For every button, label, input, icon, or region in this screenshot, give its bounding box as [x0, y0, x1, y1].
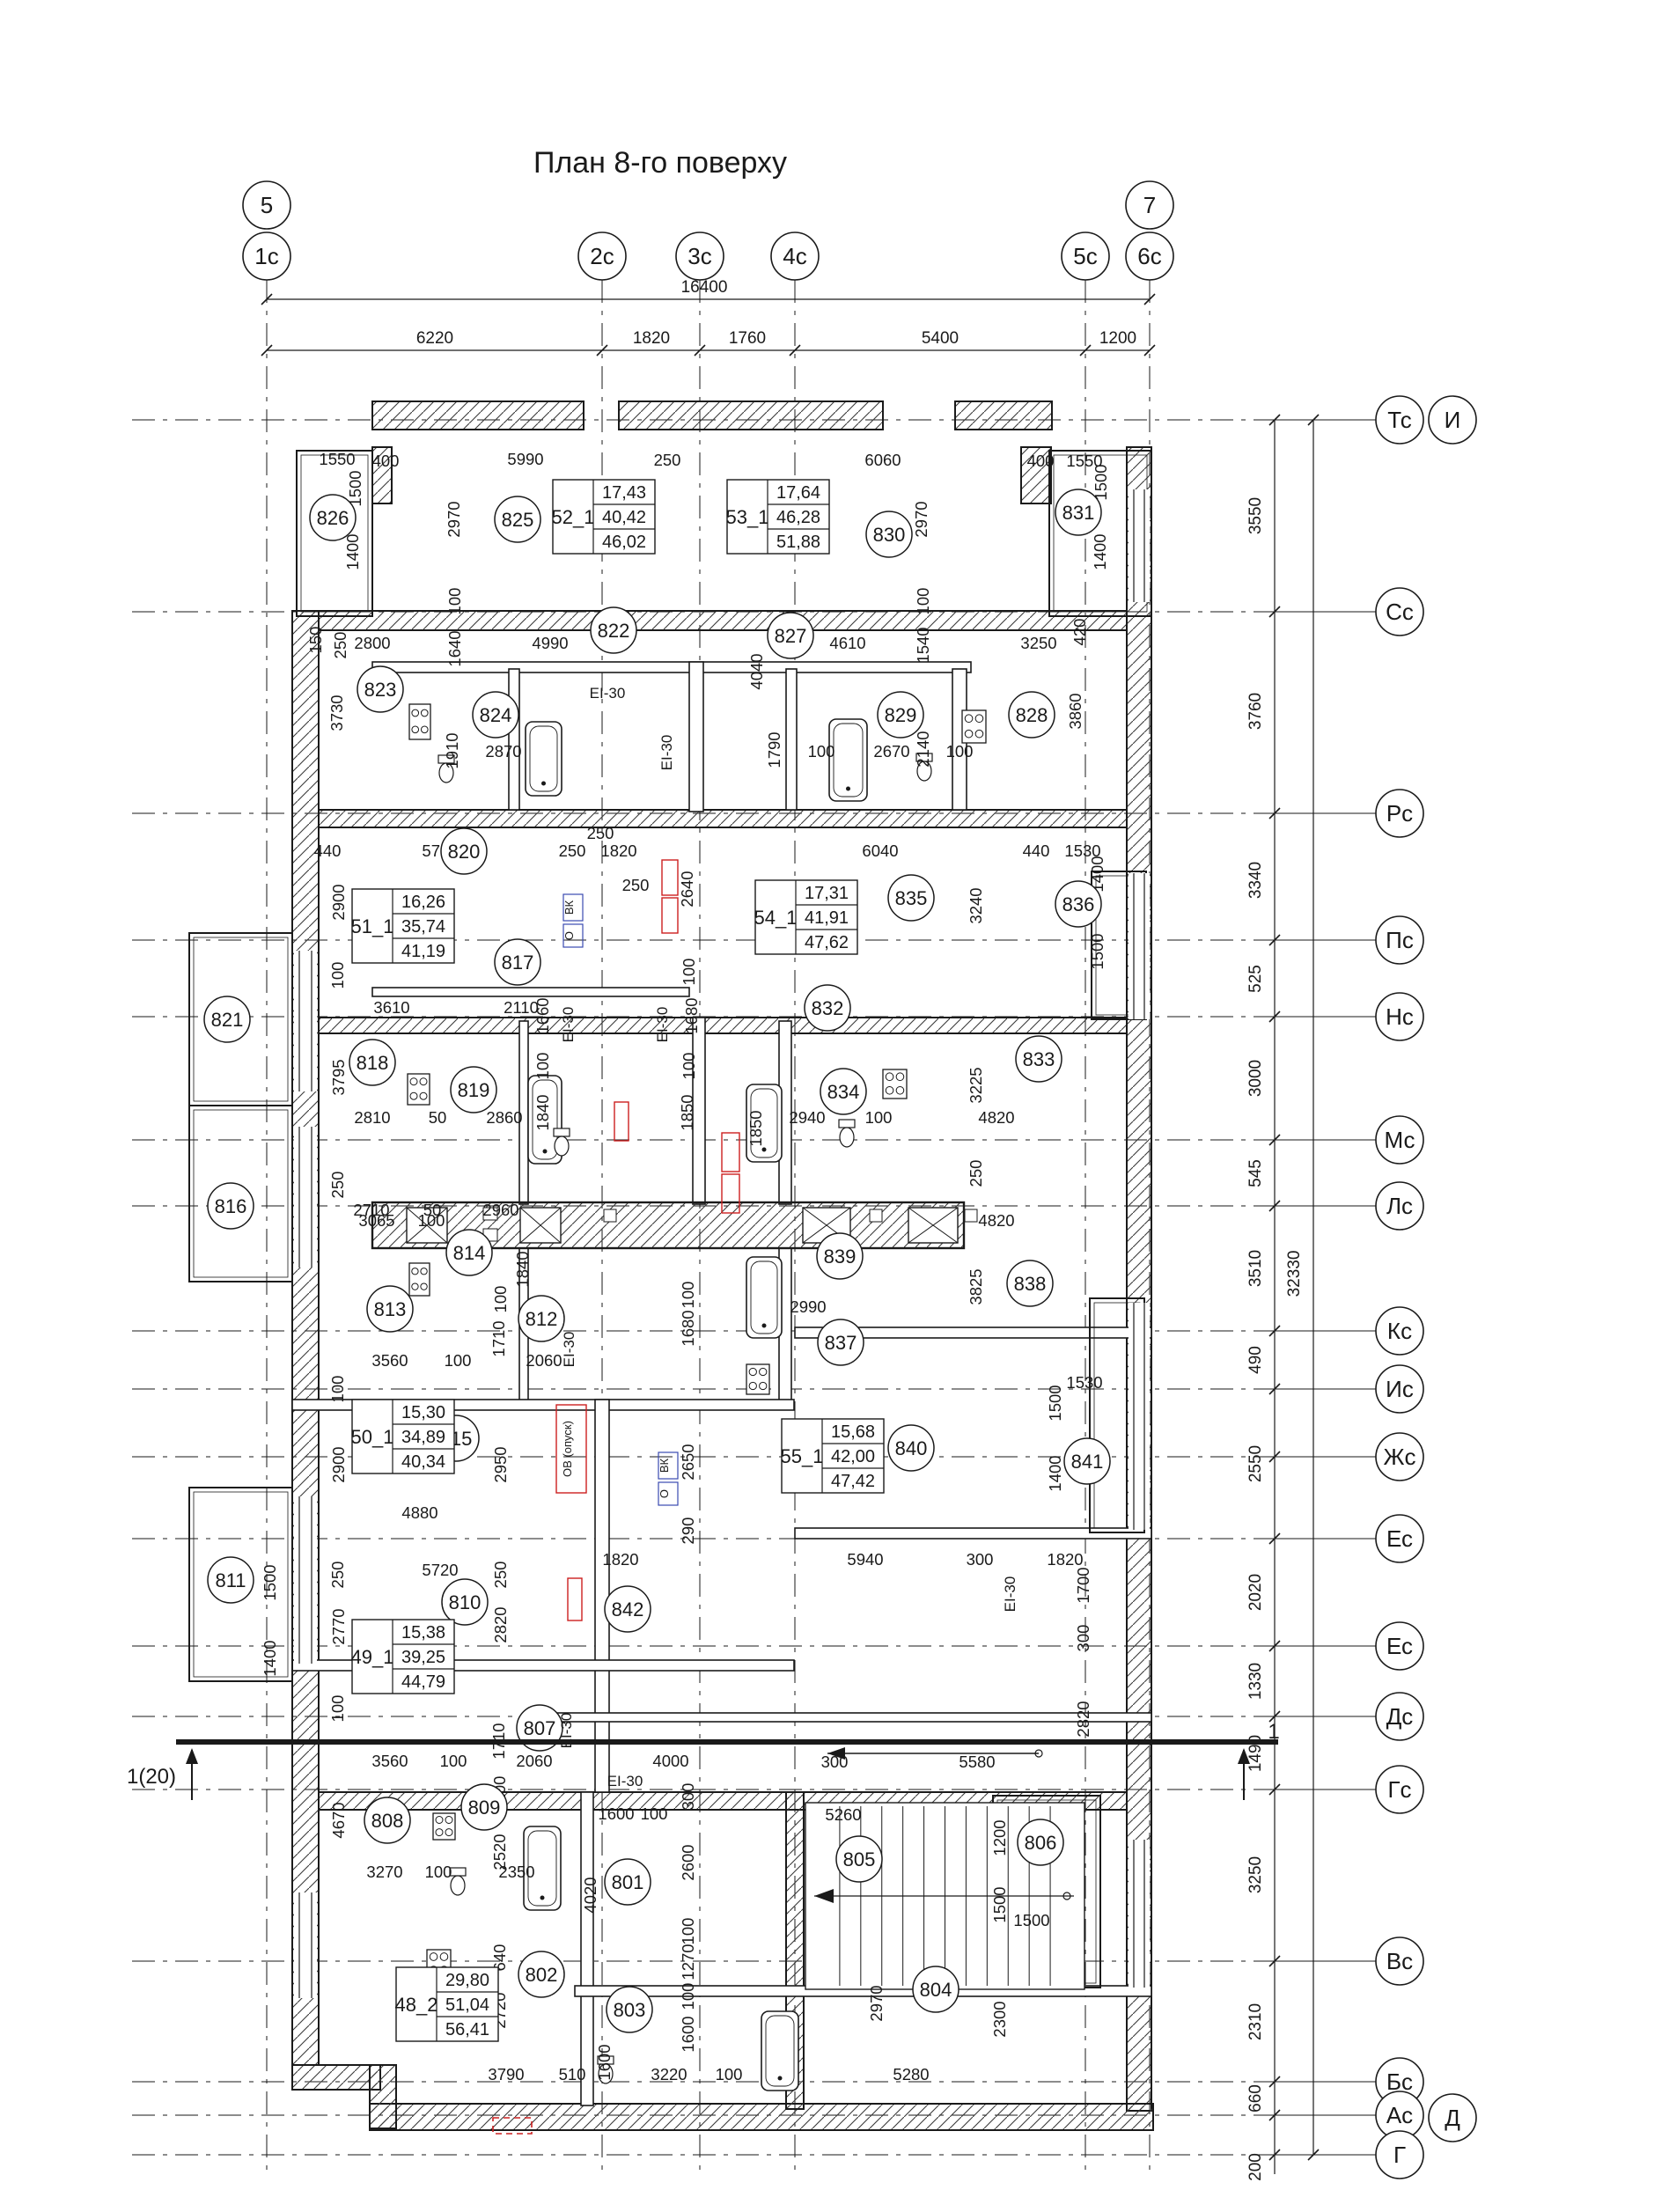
fire-rating-label: EI-30 [1002, 1576, 1018, 1613]
axis-label-7: 7 [1143, 192, 1156, 218]
room-number-826: 826 [317, 507, 349, 529]
dim-label: 3250 [1020, 634, 1056, 652]
riser-shaft-red [614, 1102, 629, 1141]
dim-label: 100 [440, 1752, 467, 1770]
dim-label: 2900 [329, 1446, 348, 1482]
dim-label: 2950 [491, 1446, 510, 1482]
room-number-809: 809 [468, 1797, 501, 1819]
dim-label: 250 [587, 824, 614, 842]
dim-label: 1530 [1066, 1373, 1102, 1392]
dim-label: 4020 [581, 1877, 599, 1913]
room-number-802: 802 [526, 1964, 558, 1986]
dim-label: 1600 [595, 2044, 614, 2080]
axis-label-Дс: Дс [1386, 1703, 1414, 1730]
dim-label: 100 [946, 742, 974, 761]
apt-area-overall: 40,34 [401, 1452, 445, 1472]
dim-label: 250 [559, 841, 586, 860]
fire-rating-label: EI-30 [607, 1773, 643, 1789]
dim-label: 2650 [679, 1444, 697, 1480]
dim-label: 1700 [1074, 1567, 1092, 1603]
axis-label-Сс: Сс [1386, 599, 1414, 625]
room-number-837: 837 [825, 1332, 857, 1354]
wall-exterior [292, 611, 319, 2065]
bathtub-drain [778, 2076, 783, 2081]
dim-label: 2960 [482, 1201, 518, 1219]
apt-id-54_1: 54_1 [754, 907, 798, 929]
apt-id-53_1: 53_1 [726, 506, 769, 528]
dim-label: 1400 [261, 1640, 279, 1676]
dim-label: 2970 [867, 1985, 886, 2021]
wall-exterior [372, 401, 584, 430]
window-opening [1129, 873, 1150, 1019]
dim-label: 1600 [598, 1804, 634, 1823]
dim-top-segment: 1820 [633, 329, 670, 348]
dim-label: 3270 [366, 1863, 402, 1881]
dim-label: 5990 [507, 450, 543, 468]
axis-label-5: 5 [261, 192, 273, 218]
dim-side-total: 32330 [1285, 1251, 1304, 1297]
dim-side-segment: 3250 [1246, 1856, 1265, 1893]
dim-label: 100 [680, 1053, 698, 1080]
axis-label-Тс: Тс [1387, 407, 1411, 433]
room-number-823: 823 [364, 679, 397, 701]
room-number-824: 824 [480, 704, 512, 726]
apt-id-52_1: 52_1 [552, 506, 595, 528]
apt-id-50_1: 50_1 [351, 1426, 394, 1448]
dim-label: 3860 [1066, 693, 1084, 729]
wall-interior [689, 662, 703, 812]
wall-exterior [955, 401, 1052, 430]
dim-label: 100 [328, 1376, 347, 1403]
dim-label: 100 [533, 1053, 552, 1080]
dim-label: 150 [306, 627, 325, 654]
axis-label-3с: 3с [687, 243, 711, 269]
dim-label: 100 [491, 1286, 510, 1313]
room-number-818: 818 [357, 1052, 389, 1074]
apt-area-living: 17,43 [602, 483, 646, 503]
dim-label: 2600 [679, 1844, 697, 1880]
dim-label: 1710 [489, 1320, 508, 1356]
stove [409, 1263, 430, 1296]
dim-label: 2820 [1074, 1701, 1092, 1737]
room-number-804: 804 [920, 1979, 952, 2001]
room-number-828: 828 [1016, 704, 1048, 726]
dim-side-segment: 1330 [1246, 1663, 1265, 1700]
room-number-817: 817 [502, 952, 534, 974]
dim-label: 1400 [1091, 533, 1109, 570]
dim-side-segment: 3000 [1246, 1060, 1265, 1097]
dim-label: 3790 [488, 2065, 524, 2083]
dim-label: 1400 [343, 533, 362, 570]
dim-label: 100 [914, 588, 932, 615]
dim-side-segment: 3510 [1246, 1250, 1265, 1287]
dim-label: 5720 [422, 1561, 458, 1579]
dim-label: 2940 [789, 1108, 825, 1127]
room-number-820: 820 [448, 841, 481, 863]
dim-label: 1500 [1046, 1385, 1064, 1421]
room-number-839: 839 [824, 1246, 857, 1268]
dim-label: 100 [445, 588, 464, 615]
dim-label: 400 [1027, 452, 1055, 470]
dim-top-segment: 1200 [1099, 329, 1136, 348]
dim-label: 6060 [864, 451, 901, 469]
room-number-819: 819 [458, 1079, 490, 1101]
dim-label: 510 [559, 2065, 586, 2083]
bathtub-drain [762, 1148, 767, 1152]
dim-label: 290 [679, 1518, 697, 1545]
room-number-842: 842 [612, 1598, 644, 1620]
toilet-bowl [840, 1128, 854, 1147]
apt-area-living: 17,64 [776, 483, 820, 503]
room-number-829: 829 [885, 704, 917, 726]
dim-label: 1850 [678, 1094, 696, 1130]
dim-label: 2770 [329, 1608, 348, 1644]
wall-interior [595, 1400, 609, 1792]
riser-shaft-red [662, 898, 678, 933]
dim-label: 4040 [747, 653, 766, 689]
dim-label: 2860 [486, 1108, 522, 1127]
riser-shaft-red [568, 1578, 582, 1620]
stove [746, 1364, 769, 1394]
fire-rating-label: EI-30 [654, 1007, 671, 1043]
axis-label-Мс: Мс [1385, 1127, 1415, 1153]
window-opening [294, 1127, 317, 1268]
toilet-tank [839, 1120, 855, 1128]
riser-shaft-red [722, 1133, 739, 1172]
dim-label: 4880 [401, 1503, 437, 1522]
dim-label: 250 [491, 1562, 510, 1589]
dim-label: 100 [679, 1282, 697, 1309]
axis-label-6с: 6с [1137, 243, 1161, 269]
dim-label: 3225 [967, 1067, 985, 1103]
dim-label: 250 [654, 451, 681, 469]
apt-area-living: 17,31 [805, 884, 849, 903]
wall-interior [581, 1792, 593, 2105]
dim-label: 50 [429, 1108, 447, 1127]
wall-interior [528, 1713, 1151, 1722]
axis-label-1с: 1с [254, 243, 278, 269]
floor-plan-drawing: 51с2с3с4с5с76сТсСсРсПсНсМсЛсКсИсЖсЕсЕсДс… [0, 0, 1669, 2212]
dim-label: 1500 [1088, 933, 1107, 969]
dim-label: 1820 [600, 841, 636, 860]
axis-label-Пс: Пс [1386, 927, 1414, 953]
dim-label: 3220 [651, 2065, 687, 2083]
dim-label: 1200 [990, 1819, 1009, 1856]
room-number-816: 816 [215, 1195, 247, 1217]
dim-label: 1600 [679, 2016, 697, 2052]
bathtub-drain [762, 1324, 767, 1328]
room-number-833: 833 [1023, 1048, 1055, 1070]
dim-label: 100 [445, 1351, 472, 1370]
dim-label: 5940 [847, 1550, 883, 1569]
dim-label: 2060 [516, 1752, 552, 1770]
room-number-830: 830 [873, 524, 906, 546]
dim-side-segment: 490 [1246, 1346, 1265, 1374]
toilet-bowl [555, 1136, 569, 1156]
apt-area-overall: 46,02 [602, 533, 646, 552]
axis-label-Д: Д [1445, 2105, 1460, 2131]
apt-id-51_1: 51_1 [351, 915, 394, 937]
room-number-801: 801 [612, 1871, 644, 1893]
dim-label: 1680 [682, 997, 701, 1033]
dim-label: 440 [1023, 841, 1050, 860]
axis-label-4с: 4с [783, 243, 806, 269]
dim-label: 100 [680, 959, 698, 986]
dim-label: 1500 [990, 1886, 1009, 1922]
dim-label: 1500 [1013, 1911, 1049, 1929]
apt-area-total: 39,25 [401, 1648, 445, 1667]
toilet-tank [450, 1868, 466, 1876]
dim-side-segment: 200 [1246, 2153, 1265, 2181]
axis-label-Ас: Ас [1386, 2102, 1413, 2128]
dim-side-segment: 2550 [1246, 1445, 1265, 1482]
dim-label: 2350 [498, 1863, 534, 1881]
apt-area-total: 34,89 [401, 1428, 445, 1447]
apt-area-overall: 44,79 [401, 1672, 445, 1692]
fire-rating-label: EI-30 [658, 735, 675, 771]
room-number-813: 813 [374, 1298, 407, 1320]
room-number-835: 835 [895, 887, 928, 909]
dim-label: 4820 [978, 1211, 1014, 1230]
axis-label-Ис: Ис [1386, 1376, 1414, 1402]
dim-label: 250 [328, 1562, 347, 1589]
dim-label: 100 [328, 1695, 347, 1723]
room-number-807: 807 [524, 1717, 556, 1739]
dim-label: 1550 [319, 450, 355, 468]
dim-label: 1500 [261, 1564, 279, 1600]
toilet-tank [554, 1128, 570, 1136]
axis-label-Кс: Кс [1387, 1318, 1412, 1344]
bathtub-drain [846, 787, 850, 791]
apt-area-total: 46,28 [776, 508, 820, 527]
dim-label: 100 [808, 742, 835, 761]
apt-area-overall: 51,88 [776, 533, 820, 552]
dim-label: 1850 [746, 1110, 765, 1146]
wall-exterior [292, 2065, 380, 2090]
dim-label: 3560 [371, 1351, 408, 1370]
apt-area-overall: 56,41 [445, 2020, 489, 2039]
dim-label: 5280 [893, 2065, 929, 2083]
dim-label: 4990 [532, 634, 568, 652]
dim-label: 2810 [354, 1108, 390, 1127]
shaft-label: ВК [658, 1458, 671, 1473]
dim-label: 4000 [652, 1752, 688, 1770]
dim-side-segment: 3760 [1246, 693, 1265, 730]
apt-area-living: 15,38 [401, 1623, 445, 1642]
axis-label-Ес: Ес [1386, 1633, 1413, 1659]
dim-label: 1540 [914, 627, 932, 663]
dim-label: 250 [331, 632, 349, 659]
dim-top-segment: 5400 [922, 329, 959, 348]
dim-side-segment: 2020 [1246, 1574, 1265, 1611]
dim-label: 100 [679, 1983, 697, 2010]
dim-label: 5260 [825, 1805, 861, 1824]
shaft-cell [965, 1209, 977, 1222]
dim-label: 300 [679, 1783, 697, 1811]
dim-label: 3825 [967, 1268, 985, 1304]
shaft-label: ВК [562, 900, 576, 915]
room-number-812: 812 [526, 1308, 558, 1330]
dim-side-segment: 3340 [1246, 862, 1265, 899]
wall-exterior [319, 611, 1127, 630]
wall-interior [372, 988, 689, 996]
wall-exterior [370, 2104, 1153, 2130]
dim-label: 5580 [959, 1753, 995, 1771]
room-number-841: 841 [1071, 1451, 1104, 1473]
dim-label: 100 [679, 1918, 697, 1945]
dim-label: 1840 [533, 1094, 552, 1130]
wall-exterior [319, 1018, 1127, 1033]
drawing-title: План 8-го поверху [533, 146, 787, 180]
room-number-821: 821 [211, 1009, 244, 1031]
window-opening [294, 1496, 317, 1664]
floor-plan-page: 51с2с3с4с5с76сТсСсРсПсНсМсЛсКсИсЖсЕсЕсДс… [0, 0, 1669, 2212]
axis-label-Гс: Гс [1387, 1776, 1411, 1803]
dim-label: 3240 [967, 887, 985, 923]
apt-area-living: 15,68 [831, 1422, 875, 1442]
room-number-838: 838 [1014, 1273, 1047, 1295]
axis-label-Нс: Нс [1386, 1003, 1414, 1030]
dim-label: 100 [418, 1211, 445, 1230]
bathtub-drain [541, 782, 546, 786]
dim-label: 2820 [491, 1606, 510, 1642]
apt-area-overall: 41,19 [401, 942, 445, 961]
dim-label: 3730 [327, 694, 346, 731]
apt-area-overall: 47,62 [805, 933, 849, 952]
dim-side-segment: 3550 [1246, 497, 1265, 534]
window-opening [1129, 1303, 1150, 1530]
dim-top-segment: 6220 [416, 329, 453, 348]
fire-rating-label: EI-30 [590, 685, 626, 702]
apt-area-overall: 47,42 [831, 1472, 875, 1491]
riser-shaft-red [662, 860, 678, 895]
dim-label: 100 [865, 1108, 893, 1127]
axis-label-Ес: Ес [1386, 1525, 1413, 1552]
axis-label-Вс: Вс [1386, 1948, 1413, 1974]
room-number-810: 810 [449, 1591, 482, 1613]
room-number-836: 836 [1062, 893, 1095, 915]
dim-label: 300 [967, 1550, 994, 1569]
dim-label: 1910 [443, 732, 461, 768]
axis-label-Лс: Лс [1386, 1193, 1413, 1219]
dim-label: 1680 [679, 1310, 697, 1346]
dim-label: 4820 [978, 1108, 1014, 1127]
dim-label: 4610 [829, 634, 865, 652]
room-number-805: 805 [843, 1848, 876, 1870]
dim-label: 2140 [914, 731, 932, 767]
dim-label: 1660 [533, 997, 552, 1033]
dim-label: 440 [314, 841, 342, 860]
dim-side-segment: 660 [1246, 2084, 1265, 2113]
dim-label: 1820 [602, 1550, 638, 1569]
wall-interior [786, 669, 797, 810]
dim-label: 2800 [354, 634, 390, 652]
axis-label-5с: 5с [1073, 243, 1097, 269]
dim-top-segment: 1760 [729, 329, 766, 348]
apt-area-living: 29,80 [445, 1971, 489, 1990]
apt-id-49_1: 49_1 [351, 1646, 394, 1668]
stove [409, 704, 430, 739]
room-number-803: 803 [614, 1999, 646, 2021]
window-opening [294, 1892, 317, 1998]
dim-top-total: 16400 [681, 278, 728, 297]
bathtub-drain [540, 1896, 545, 1900]
dim-label: 1820 [1047, 1550, 1083, 1569]
dim-label: 250 [967, 1160, 985, 1187]
dim-label: 1400 [1046, 1455, 1064, 1491]
room-number-806: 806 [1025, 1832, 1057, 1854]
dim-label: 3610 [373, 998, 409, 1017]
shaft-cell [870, 1209, 882, 1222]
dim-label: 100 [641, 1804, 668, 1823]
dim-label: 6040 [862, 841, 898, 860]
apt-area-total: 41,91 [805, 908, 849, 928]
dim-label: 2870 [485, 742, 521, 761]
dim-label: 100 [716, 2065, 743, 2083]
axis-label-Рс: Рс [1386, 800, 1413, 827]
dim-label: 3065 [358, 1211, 394, 1230]
apt-id-55_1: 55_1 [781, 1445, 824, 1467]
room-number-825: 825 [502, 509, 534, 531]
apt-area-living: 15,30 [401, 1403, 445, 1422]
dim-side-segment: 2310 [1246, 2003, 1265, 2040]
dim-label: 2900 [329, 884, 348, 920]
dim-label: 2670 [873, 742, 909, 761]
wall-exterior [619, 401, 883, 430]
fire-rating-label: EI-30 [560, 1007, 577, 1043]
room-number-827: 827 [775, 625, 807, 647]
dim-label: 1790 [765, 731, 783, 768]
axis-label-Г: Г [1393, 2142, 1406, 2168]
window-opening [1129, 489, 1150, 602]
room-number-811: 811 [215, 1569, 246, 1591]
axis-label-И: И [1445, 407, 1461, 433]
dim-label: 1840 [513, 1251, 532, 1287]
stove [962, 710, 986, 743]
wall-exterior [319, 810, 1127, 827]
room-number-834: 834 [827, 1081, 860, 1103]
section-label-right: 1 [1268, 1720, 1279, 1744]
room-number-822: 822 [598, 620, 630, 642]
fire-rating-label: EI-30 [561, 1332, 577, 1368]
axis-label-Жс: Жс [1383, 1444, 1415, 1470]
dim-label: 2640 [678, 871, 696, 907]
dim-label: 250 [622, 876, 650, 894]
dim-label: 250 [328, 1172, 347, 1199]
apt-area-total: 40,42 [602, 508, 646, 527]
apt-area-total: 35,74 [401, 917, 445, 937]
toilet-bowl [451, 1876, 465, 1895]
axis-label-2с: 2с [590, 243, 614, 269]
dim-label: 3795 [329, 1059, 348, 1095]
apt-area-living: 16,26 [401, 893, 445, 912]
stove [408, 1074, 430, 1105]
shaft-label: ОВ (опуск) [561, 1421, 574, 1477]
dim-label: 400 [372, 452, 400, 470]
apt-area-total: 42,00 [831, 1447, 875, 1466]
dim-label: 3560 [371, 1752, 408, 1770]
room-number-831: 831 [1062, 502, 1095, 524]
section-arrow-head [186, 1748, 198, 1764]
wall-exterior [370, 2065, 396, 2128]
dim-side-segment: 545 [1246, 1159, 1265, 1187]
shaft-cell [604, 1209, 616, 1222]
dim-label: 4670 [329, 1802, 348, 1838]
window-opening [1129, 1840, 1150, 1988]
shaft-label: О [658, 1489, 671, 1498]
window-opening [294, 951, 317, 1091]
room-number-814: 814 [453, 1242, 486, 1264]
